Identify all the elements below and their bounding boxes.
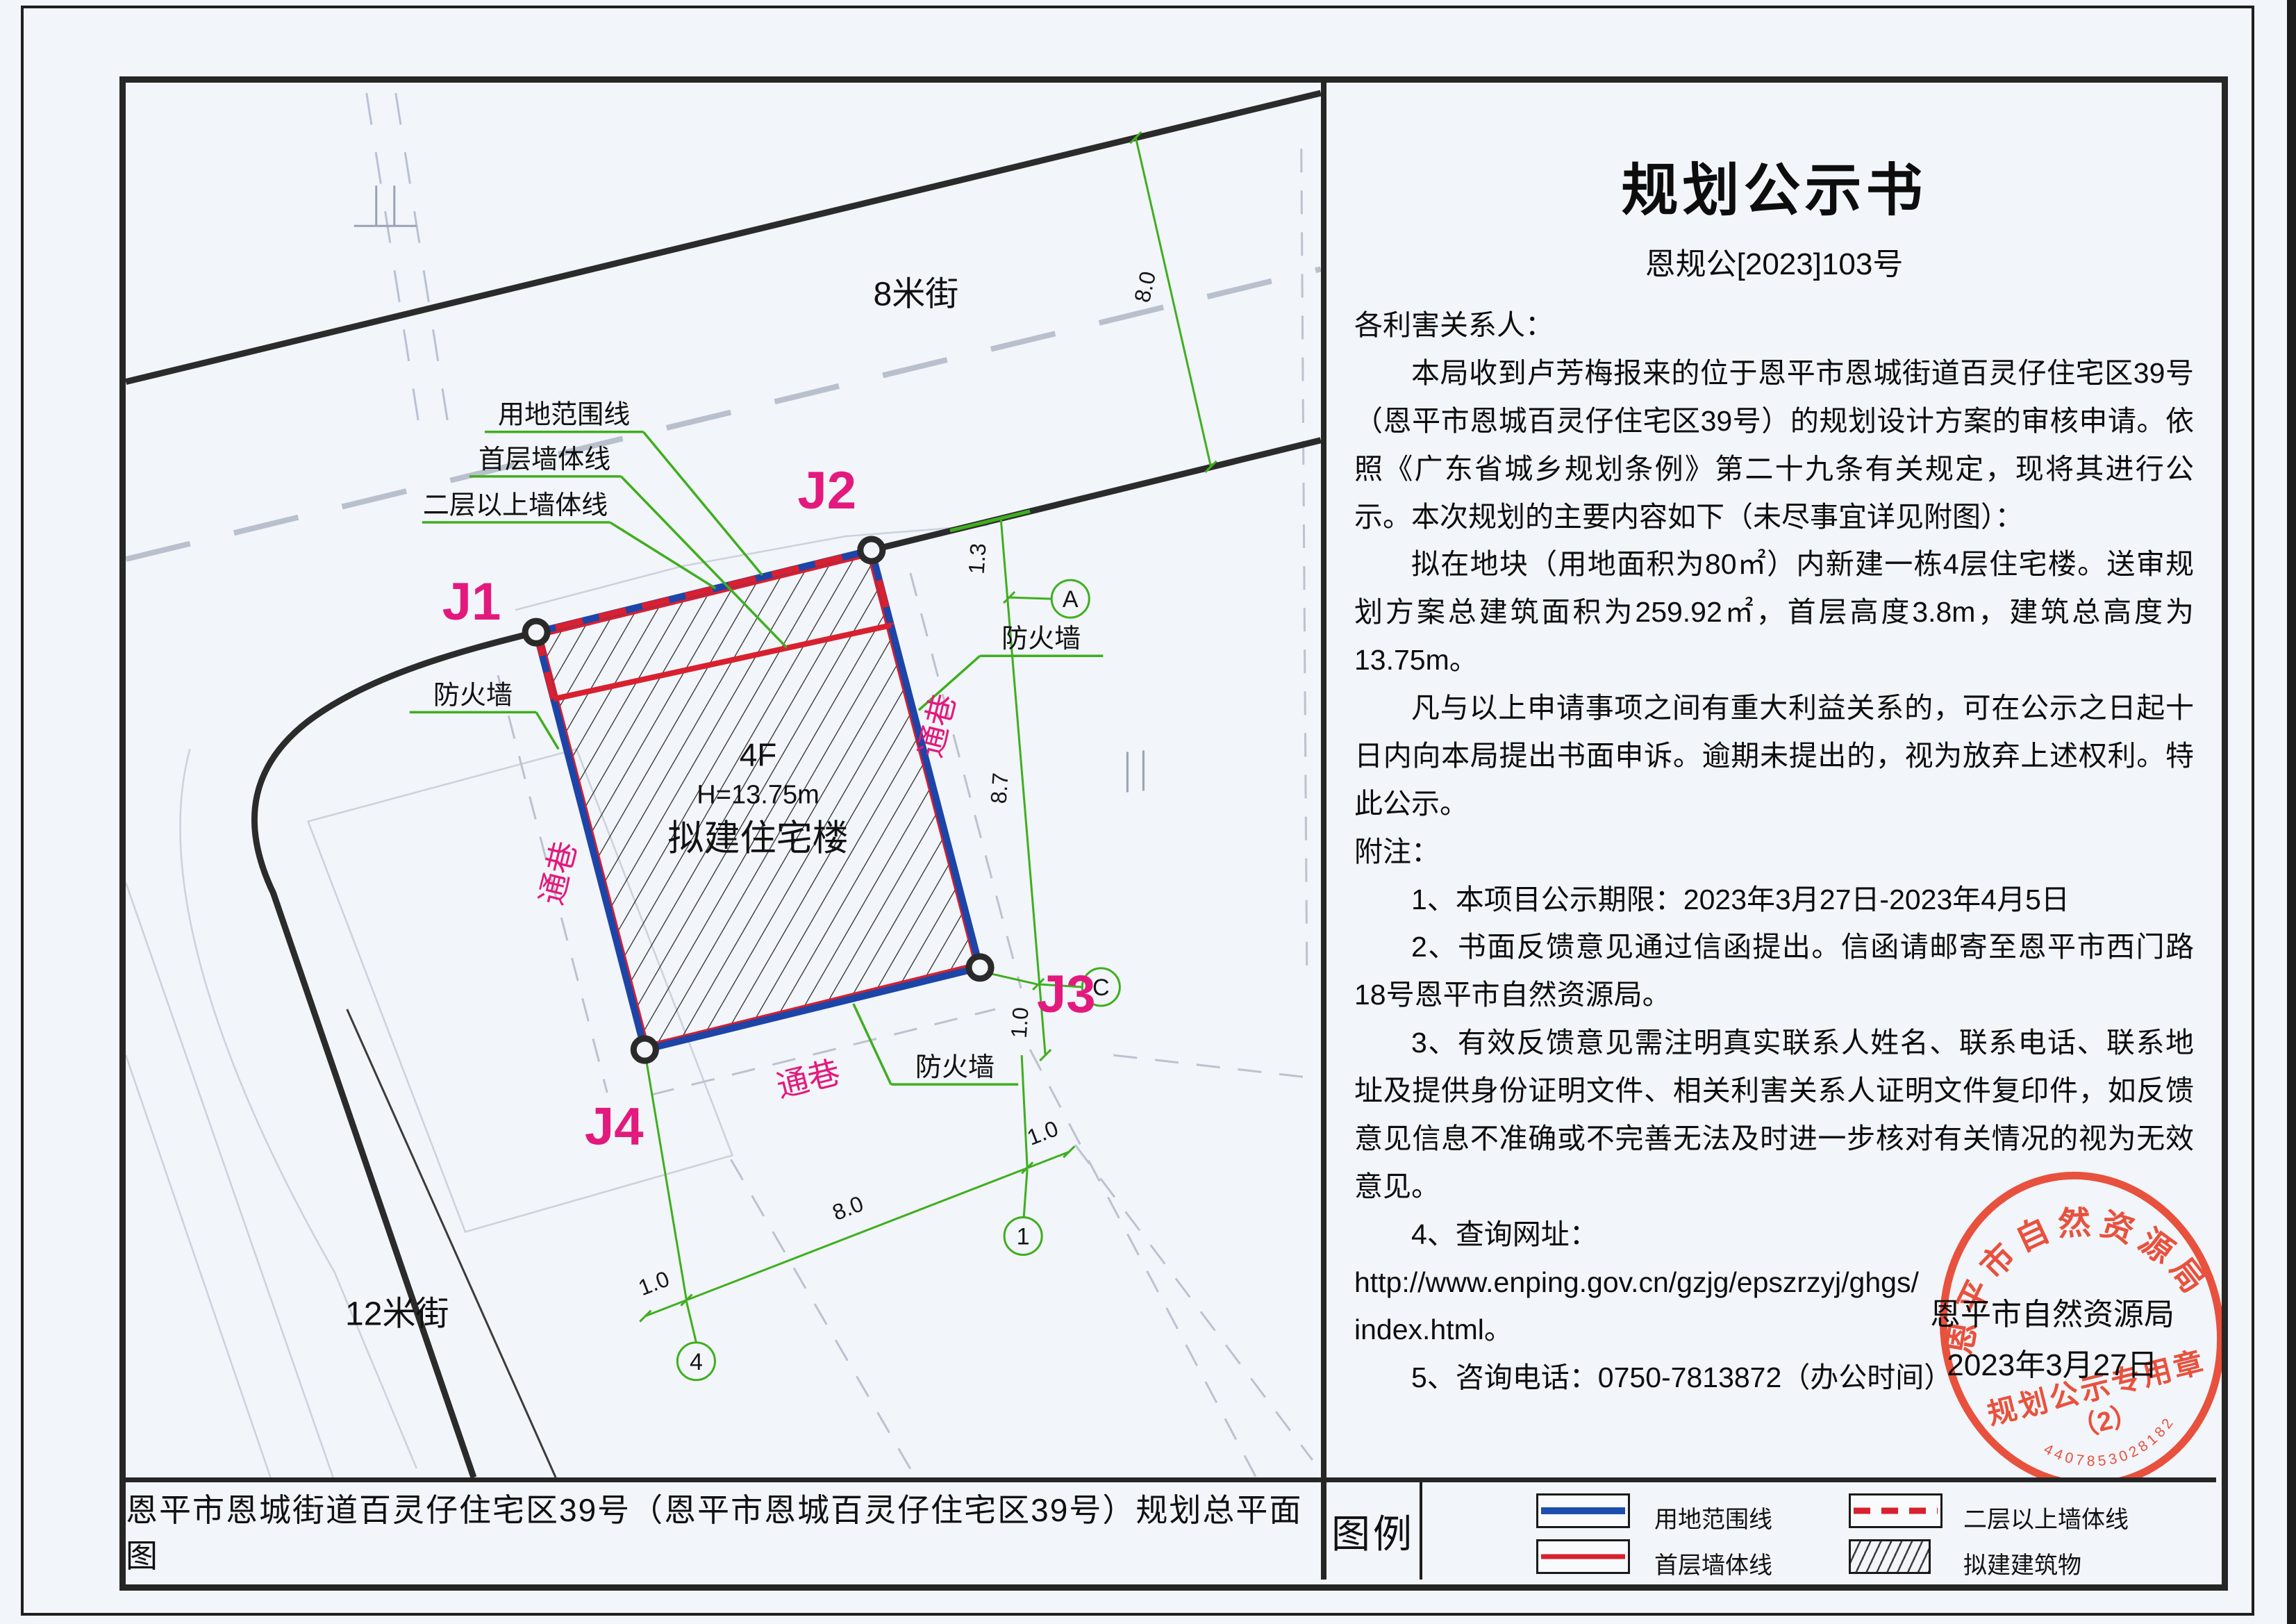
notice-panel: 规划公示书 恩规公[2023]103号 各利害关系人： 本局收到卢芳梅报来的位于… (1321, 83, 2222, 1477)
axis-bubble-4: 4 (690, 1349, 703, 1375)
red-dashed-line-icon (1854, 1508, 1938, 1514)
corner-marker-j2 (860, 539, 883, 561)
notes-heading: 附注： (1354, 828, 2194, 876)
corner-label-j3: J3 (1037, 965, 1096, 1024)
legend-label-ground-wall: 首层墙体线 (1654, 1546, 1772, 1580)
corner-marker-j3 (969, 956, 991, 979)
building-name: 拟建住宅楼 (667, 819, 848, 859)
site-plan-drawing: 8.0 1.3 8.7 1.0 1.0 8.0 1.0 A C 4 1 (126, 83, 1321, 1477)
paragraph-objection: 凡与以上申请事项之间有重大利益关系的，可在公示之日起十日内向本局提出书面申诉。逾… (1354, 684, 2194, 828)
site-plan: 8.0 1.3 8.7 1.0 1.0 8.0 1.0 A C 4 1 (126, 83, 1321, 1477)
corner-label-j2: J2 (797, 461, 856, 520)
scanner-edge-band (2287, 0, 2296, 1624)
signature-date: 2023年3月27日 (1903, 1341, 2202, 1391)
legend-swatch-boundary (1536, 1493, 1630, 1528)
drawing-caption: 恩平市恩城街道百灵仔住宅区39号（恩平市恩城百灵仔住宅区39号）规划总平面图 (126, 1485, 1321, 1577)
corner-label-j4: J4 (585, 1097, 644, 1156)
red-line-icon (1541, 1555, 1625, 1559)
street-centerline (126, 269, 1321, 559)
legend-swatch-upper-wall (1849, 1493, 1943, 1528)
dim-street-width: 8.0 (1129, 269, 1161, 304)
legend-swatch-proposed-building (1849, 1539, 1931, 1574)
legend-title: 图例 (1326, 1482, 1422, 1580)
signature-org: 恩平市自然资源局 (1903, 1290, 2202, 1341)
note-2-mail: 2、书面反馈意见通过信函提出。信函请邮寄至恩平市西门路18号恩平市自然资源局。 (1354, 923, 2194, 1019)
road-edge-north (126, 93, 1321, 382)
salutation: 各利害关系人： (1354, 301, 2194, 349)
dim-east-bottom: 1.0 (1006, 1006, 1033, 1039)
scanned-planning-notice: { "notice": { "title": "规划公示书", "doc_no"… (0, 0, 2296, 1624)
alley-label-east: 通巷 (912, 690, 963, 761)
signature-block: 恩平市自然资源局 2023年3月27日 (1903, 1290, 2202, 1391)
alley-label-west: 通巷 (533, 838, 583, 909)
axis-bubble-1: 1 (1017, 1223, 1030, 1250)
street-label-8m: 8米街 (873, 275, 958, 313)
corner-marker-j4 (633, 1038, 656, 1061)
legend-label-upper-wall: 二层以上墙体线 (1963, 1500, 2129, 1534)
axis-bubble-a: A (1063, 586, 1079, 613)
label-boundary-line: 用地范围线 (498, 401, 630, 430)
label-upper-wall-line: 二层以上墙体线 (423, 491, 608, 520)
legend-items: 用地范围线 首层墙体线 二层以上墙体线 拟建建筑物 (1425, 1482, 2216, 1580)
paragraph-intro: 本局收到卢芳梅报来的位于恩平市恩城街道百灵仔住宅区39号（恩平市恩城百灵仔住宅区… (1354, 349, 2194, 541)
building-height: H=13.75m (697, 781, 820, 810)
firewall-label-bottom: 防火墙 (915, 1053, 995, 1082)
note-1-period: 1、本项目公示期限：2023年3月27日-2023年4月5日 (1354, 876, 2194, 924)
firewall-label-left: 防火墙 (433, 681, 513, 710)
dim-east-mid: 8.7 (986, 772, 1013, 804)
legend-label-proposed-building: 拟建建筑物 (1963, 1546, 2081, 1580)
corner-label-j1: J1 (442, 572, 501, 631)
faint-dashed-lines (367, 93, 451, 441)
sheet-frame: 8.0 1.3 8.7 1.0 1.0 8.0 1.0 A C 4 1 (119, 76, 2228, 1591)
street-label-12m: 12米街 (345, 1295, 449, 1333)
blue-line-icon (1541, 1507, 1625, 1514)
legend-swatch-ground-wall (1536, 1539, 1630, 1574)
dim-south-right: 1.0 (1024, 1116, 1061, 1150)
drawing-caption-strip: 恩平市恩城街道百灵仔住宅区39号（恩平市恩城百灵仔住宅区39号）规划总平面图 (126, 1477, 1321, 1580)
paragraph-plan-content: 拟在地块（用地面积为80㎡）内新建一栋4层住宅楼。送审规划方案总建筑面积为259… (1354, 540, 2194, 684)
legend: 图例 用地范围线 首层墙体线 二层以上墙体线 拟建建筑物 (1321, 1477, 2216, 1580)
corner-marker-j1 (525, 621, 547, 643)
annotation-texts: 用地范围线 首层墙体线 二层以上墙体线 防火墙 防火墙 防火墙 8米街 12米街… (345, 275, 1081, 1332)
notice-title: 规划公示书 (1326, 144, 2222, 226)
building-floors: 4F (740, 736, 777, 772)
legend-label-boundary: 用地范围线 (1654, 1500, 1772, 1534)
notice-doc-number: 恩规公[2023]103号 (1326, 239, 2222, 283)
dim-south-mid: 8.0 (829, 1191, 867, 1225)
label-ground-wall-line: 首层墙体线 (479, 445, 610, 474)
firewall-label-right: 防火墙 (1001, 624, 1081, 654)
dim-east-top: 1.3 (964, 542, 991, 575)
dim-south-left: 1.0 (635, 1266, 672, 1301)
